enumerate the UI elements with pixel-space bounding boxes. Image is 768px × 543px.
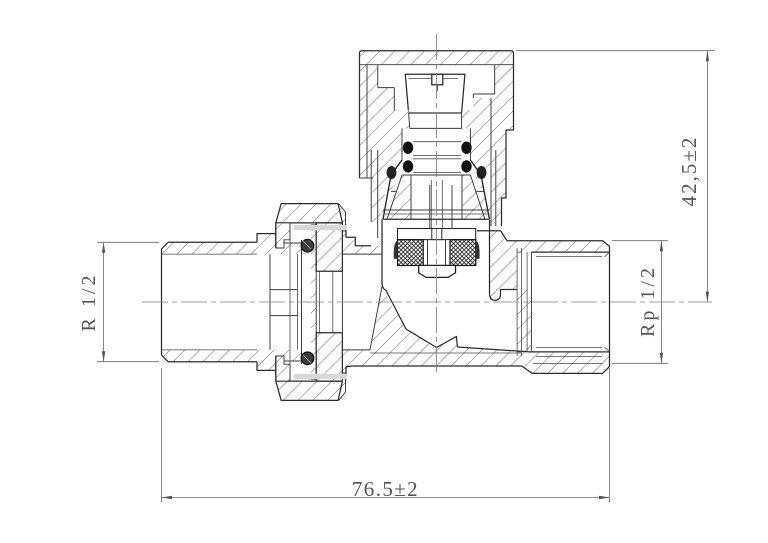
svg-text:Rp 1/2: Rp 1/2 [637, 265, 659, 337]
svg-text:42,5±2: 42,5±2 [677, 136, 701, 207]
svg-text:R 1/2: R 1/2 [78, 273, 100, 332]
svg-text:76.5±2: 76.5±2 [352, 477, 419, 501]
